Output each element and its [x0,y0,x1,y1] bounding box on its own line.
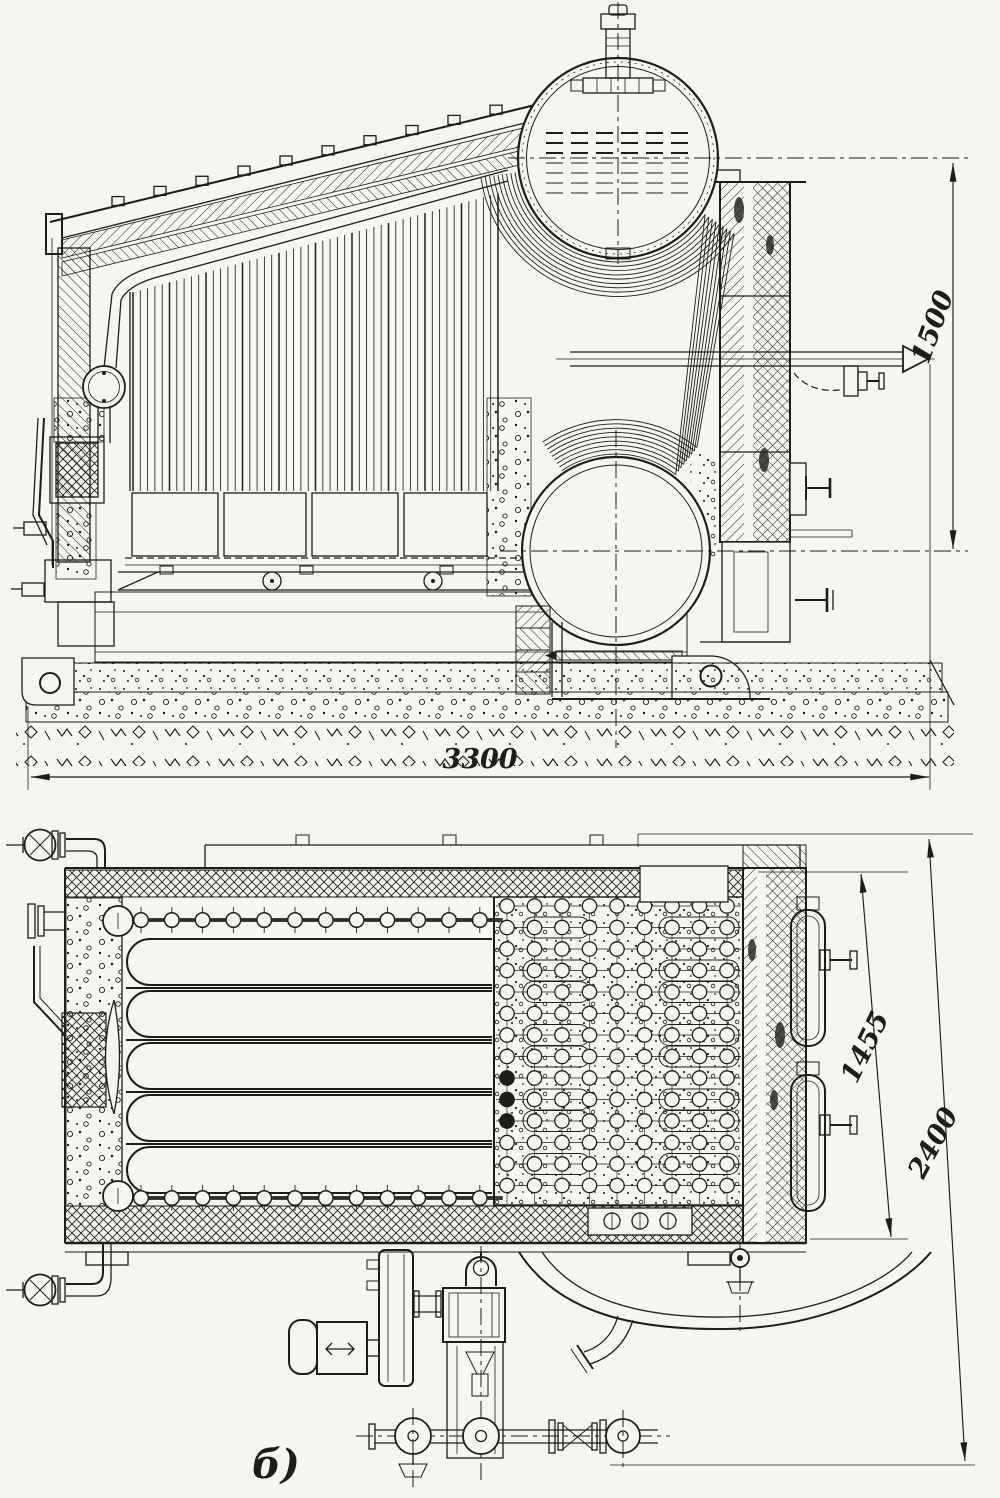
dimension-arrows [31,163,967,1461]
view-label: б) [252,1441,300,1488]
bottom-header-box [588,1208,692,1235]
convection-tube-bank [494,866,743,1205]
rear-access-door [790,463,806,515]
tie-rod [556,651,682,660]
feed-piping-and-valves [356,1408,670,1492]
left-flange-mid [28,904,66,1034]
left-valve-top [6,830,105,869]
flue-gas-outlet [640,866,728,902]
flame-tubes [126,939,492,1193]
rear-brick-wall [700,170,852,642]
plan-view: 1455 2400 б) [6,830,975,1493]
foot-left [86,1252,128,1265]
dim-2400-label: 2400 [902,1102,965,1184]
burner-port [62,1013,106,1107]
fan-and-motor [289,1250,441,1386]
side-elevation-view: 3300 1500 [11,2,968,790]
dim-3300-label: 3300 [442,744,517,775]
drum-tube-row-top [132,907,503,933]
pump-discharge-valve [463,1418,499,1454]
feed-pipe [104,170,508,368]
foot-right [688,1252,730,1265]
dim-1500-label: 1500 [906,286,961,367]
lower-drum-end-plan [519,1243,931,1373]
dimension-1500: 1500 [906,163,961,549]
lower-rear-door [722,542,790,642]
chain [794,373,840,390]
drawing-sheet: 3300 1500 [0,0,1000,1498]
dim-1455-label: 1455 [835,1007,896,1088]
plan-top-step [205,835,806,868]
front-wall-and-burner [11,238,125,646]
boiler-technical-drawing: 3300 1500 [0,0,1000,1498]
